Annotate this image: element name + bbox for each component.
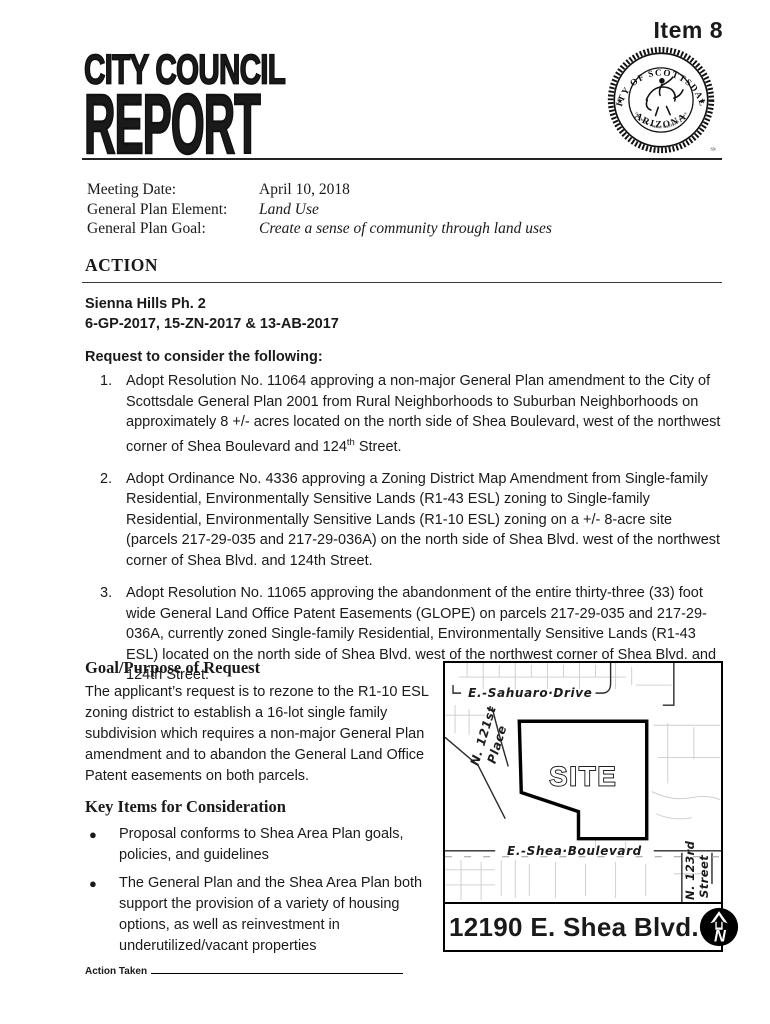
meeting-date-row: Meeting Date:April 10, 2018: [87, 180, 552, 200]
request-item-1: 1. Adopt Resolution No. 11064 approving …: [85, 371, 721, 457]
case-block: Sienna Hills Ph. 2 6-GP-2017, 15-ZN-2017…: [85, 294, 339, 367]
n-123rd-label: N. 123rd: [683, 840, 697, 900]
header-divider: [82, 158, 722, 160]
key-item-bullet-2: ● The General Plan and the Shea Area Pla…: [85, 873, 437, 957]
action-section-heading: ACTION: [85, 255, 158, 276]
key-item-2-text: The General Plan and the Shea Area Plan …: [119, 873, 437, 957]
meeting-date-label: Meeting Date:: [87, 180, 259, 200]
action-taken-footer: Action Taken: [85, 963, 403, 977]
scottsdale-seal: CITY OF SCOTTSDALE ARIZONA ★ ★ THE WEST'…: [606, 45, 716, 155]
item-1-text: Adopt Resolution No. 11064 approving a n…: [126, 371, 721, 457]
map-address: 12190 E. Shea Blvd.: [445, 912, 699, 943]
item-1-number: 1.: [100, 371, 126, 457]
location-map: E.-Sahuaro·Drive N. 121st Place SITE E.-…: [443, 661, 723, 952]
item-number: Item 8: [654, 17, 723, 44]
north-arrow-icon: N: [699, 907, 739, 947]
request-items-list: 1. Adopt Resolution No. 11064 approving …: [85, 371, 721, 698]
item-1-text-main: Adopt Resolution No. 11064 approving a n…: [126, 373, 720, 454]
seal-star-left: ★: [616, 97, 623, 106]
bullet-marker: ●: [85, 824, 119, 866]
map-area: E.-Sahuaro·Drive N. 121st Place SITE E.-…: [445, 663, 721, 904]
general-plan-goal-label: General Plan Goal:: [87, 219, 259, 239]
meeting-info: Meeting Date:April 10, 2018 General Plan…: [87, 180, 552, 239]
site-label: SITE: [549, 761, 617, 792]
item-2-number: 2.: [100, 469, 126, 572]
street-label: Street: [697, 855, 711, 898]
general-plan-element-label: General Plan Element:: [87, 200, 259, 220]
bullet-marker: ●: [85, 873, 119, 957]
key-item-bullet-1: ● Proposal conforms to Shea Area Plan go…: [85, 824, 437, 866]
report-title: CITY COUNCIL REPORT: [84, 50, 422, 160]
action-taken-blank-line: [151, 963, 403, 974]
action-divider: [82, 282, 722, 283]
request-intro: Request to consider the following:: [85, 347, 339, 367]
general-plan-goal-value: Create a sense of community through land…: [259, 220, 552, 237]
item-2-text: Adopt Ordinance No. 4336 approving a Zon…: [126, 469, 721, 572]
item-1-ordinal-sup: th: [347, 437, 355, 448]
meeting-date-value: April 10, 2018: [259, 181, 350, 198]
goal-purpose-heading: Goal/Purpose of Request: [85, 658, 437, 678]
key-item-1-text: Proposal conforms to Shea Area Plan goal…: [119, 824, 437, 866]
general-plan-element-value: Land Use: [259, 201, 319, 218]
sahuaro-drive-label: E.-Sahuaro·Drive: [468, 686, 592, 700]
goal-purpose-body: The applicant’s request is to rezone to …: [85, 682, 437, 787]
case-numbers: 6-GP-2017, 15-ZN-2017 & 13-AB-2017: [85, 314, 339, 334]
case-title: Sienna Hills Ph. 2: [85, 294, 339, 314]
shea-boulevard-label: E.-Shea·Boulevard: [507, 844, 642, 858]
general-plan-goal-row: General Plan Goal:Create a sense of comm…: [87, 219, 552, 239]
seal-trademark: SM: [711, 146, 717, 151]
key-items-heading: Key Items for Consideration: [85, 797, 437, 817]
report-title-line2: REPORT: [84, 88, 260, 160]
request-item-2: 2. Adopt Ordinance No. 4336 approving a …: [85, 469, 721, 572]
item-1-text-tail: Street.: [355, 438, 402, 454]
map-drawing: E.-Sahuaro·Drive N. 121st Place SITE E.-…: [445, 663, 721, 904]
map-address-bar: 12190 E. Shea Blvd. N: [445, 902, 721, 950]
city-council-report-page: Item 8 CITY COUNCIL REPORT CITY OF SCOTT…: [0, 0, 770, 1024]
seal-star-right: ★: [699, 97, 706, 106]
summary-column: Goal/Purpose of Request The applicant’s …: [85, 658, 437, 957]
north-letter: N: [714, 928, 727, 946]
action-taken-label: Action Taken: [85, 966, 147, 977]
general-plan-element-row: General Plan Element:Land Use: [87, 200, 552, 220]
